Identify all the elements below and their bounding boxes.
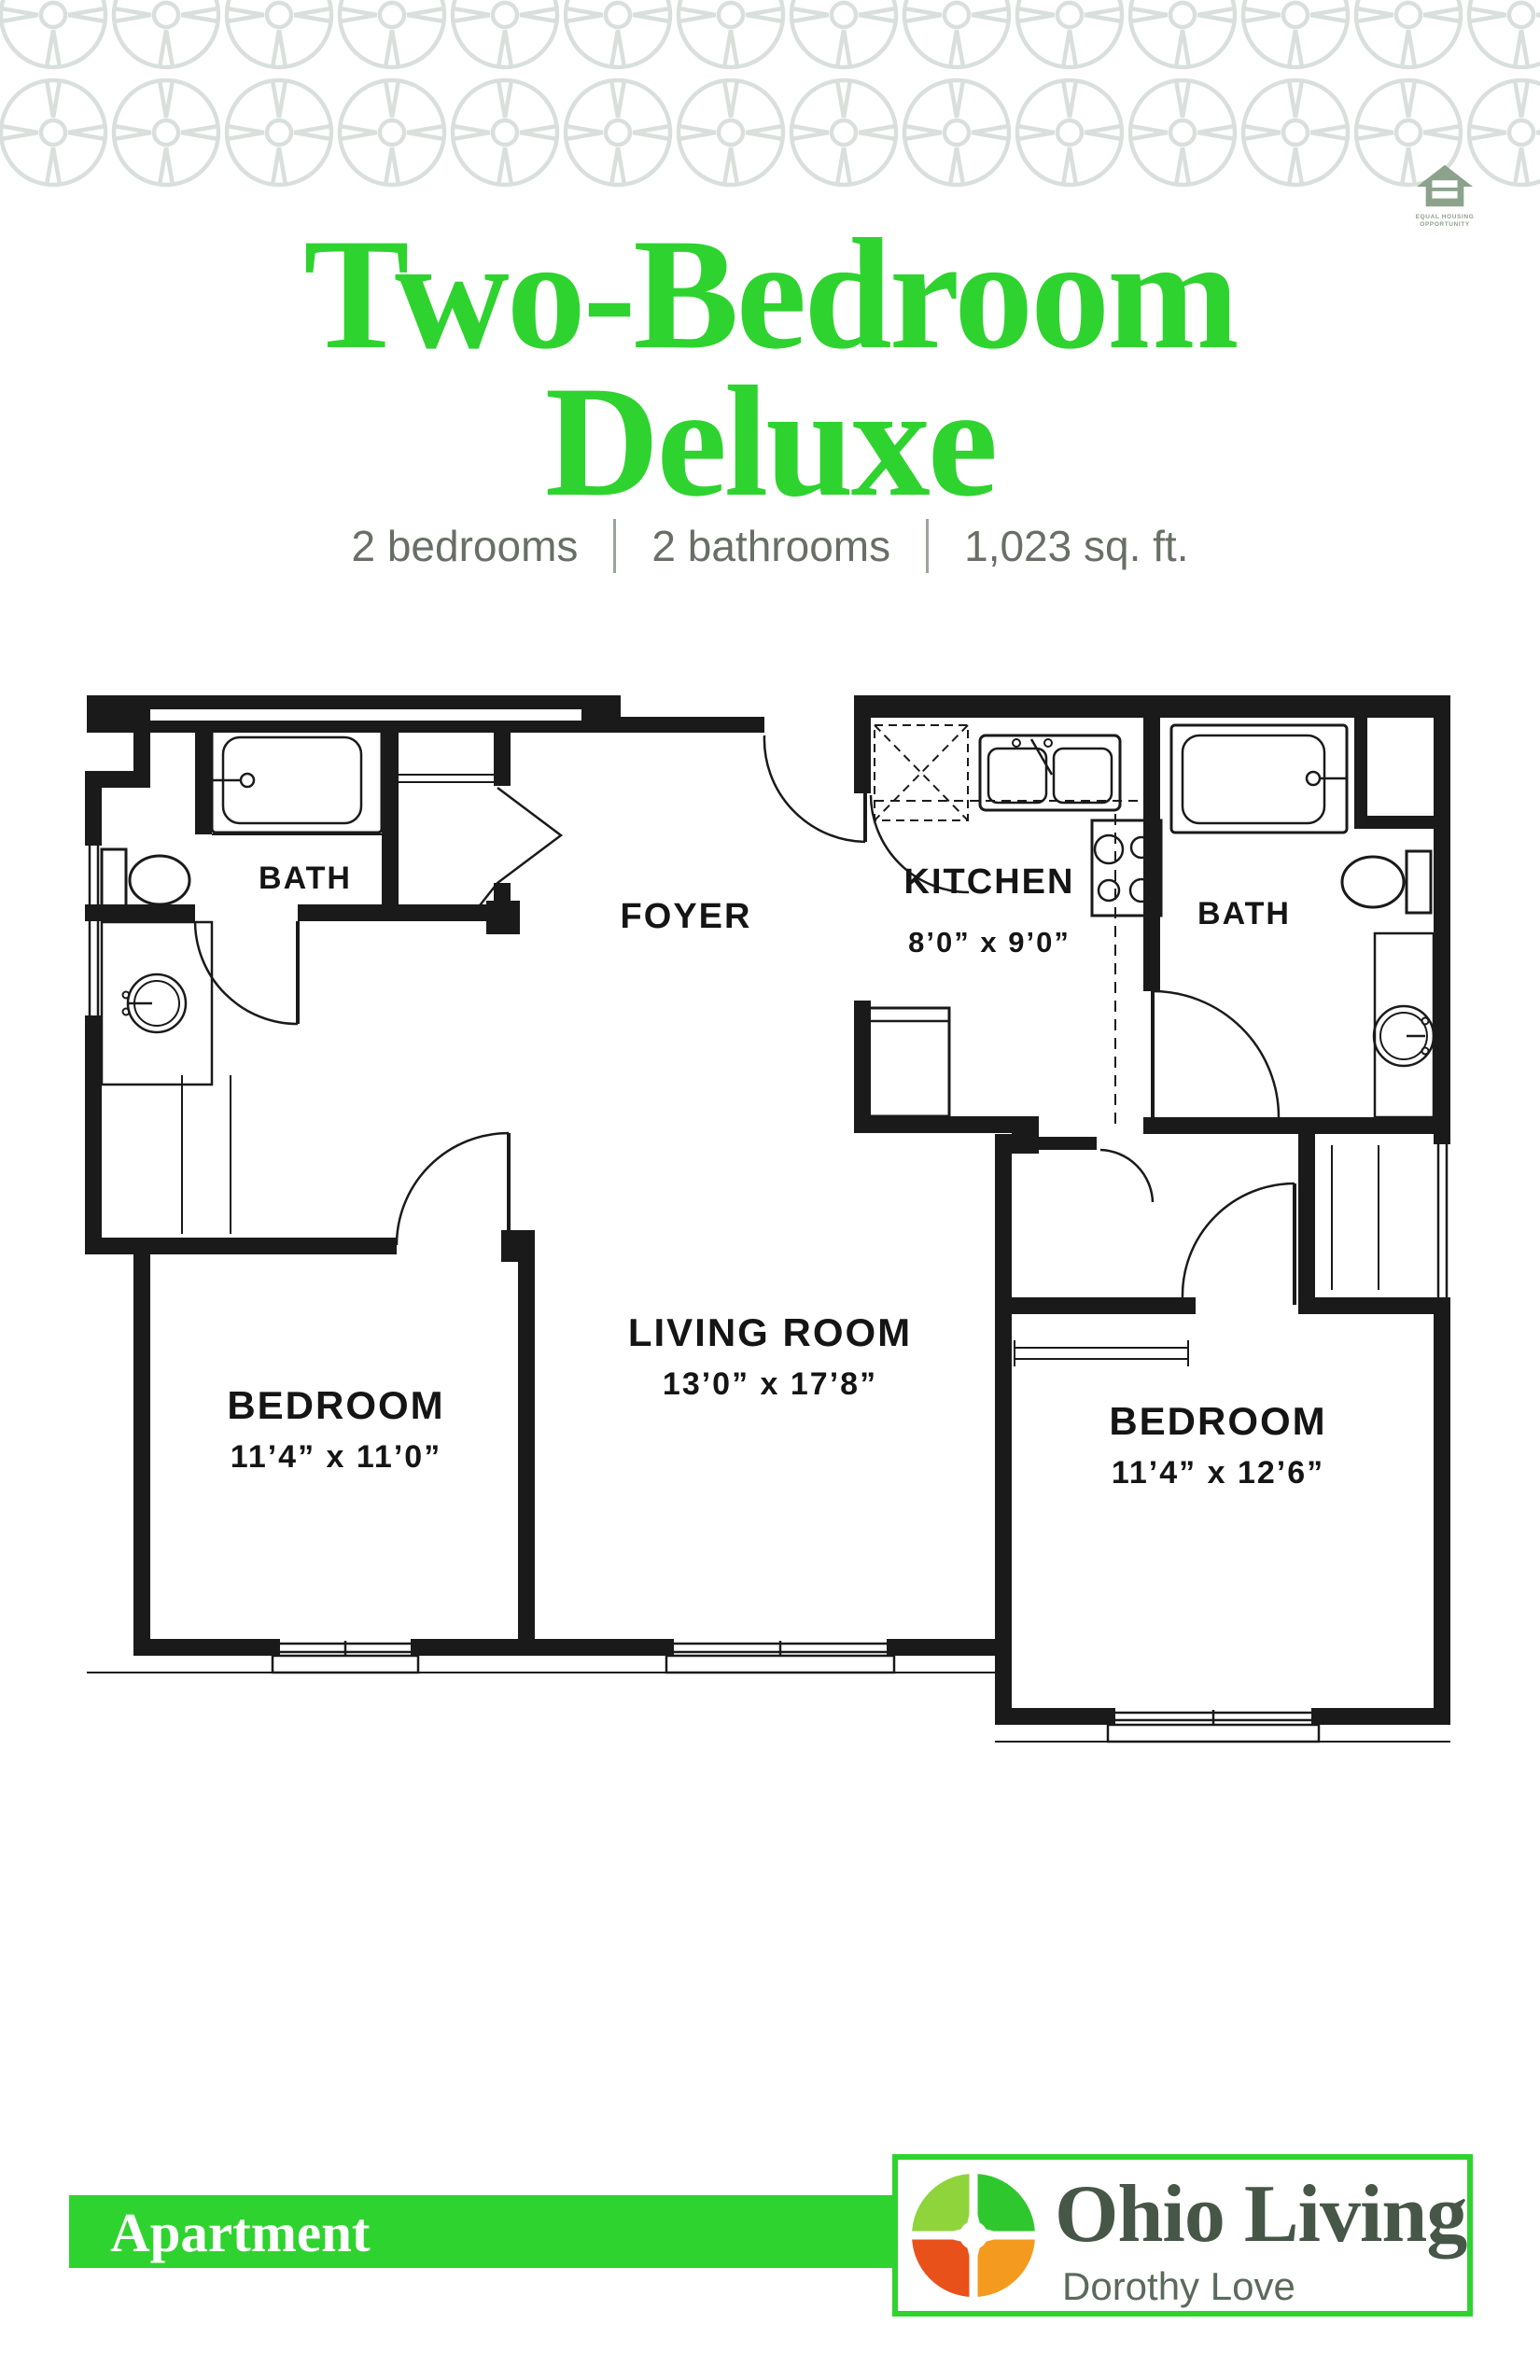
label-living-room: LIVING ROOM [628,1310,912,1354]
bath-right-door-arc [1153,991,1279,1117]
unit-type-label: Apartment [69,2195,892,2270]
equal-housing-house-icon [1417,164,1473,209]
floor-plan: BATH FOYER KITCHEN 8’0” x 9’0” BATH BEDR… [70,693,1451,1757]
brand-name: Ohio Living [1055,2167,1466,2261]
summary-divider [926,519,929,573]
summary-area: 1,023 sq. ft. [964,521,1188,571]
label-bedroom-left: BEDROOM [227,1383,444,1427]
equal-housing-logo: EQUAL HOUSING OPPORTUNITY [1407,164,1482,229]
label-foyer: FOYER [621,897,752,936]
vanity-icon [102,922,212,1085]
flyer-page: { "header": { "pattern_color": "#d9e0dc"… [0,0,1540,2380]
unit-summary: 2 bedrooms 2 bathrooms 1,023 sq. ft. [0,519,1540,573]
unit-type-banner: Apartment [69,2195,892,2268]
label-bath-right: BATH [1197,896,1291,931]
summary-divider [613,519,616,573]
title-line1: Two-Bedroom [0,220,1540,368]
walls [85,695,1450,1725]
summary-bedrooms: 2 bedrooms [351,521,578,571]
summary-bathrooms: 2 bathrooms [651,521,890,571]
foyer-closet-bifold [477,788,561,909]
tub-faucet-icon [241,774,254,787]
tub-faucet-icon [1307,772,1320,785]
brand-community: Dorothy Love [1062,2264,1295,2309]
entry-door-arc [764,735,865,842]
label-living-room-dims: 13’0” x 17’8” [663,1366,877,1402]
bath-left-door-arc [195,921,298,1024]
toilet-icon [1407,851,1431,913]
label-bath-left: BATH [259,861,352,896]
windows [90,842,1447,1742]
ohio-living-logo-icon [903,2165,1043,2305]
bedroom-right-door-arc [1183,1183,1295,1297]
decorative-pattern-band [0,0,1540,196]
label-kitchen-dims: 8’0” x 9’0” [908,926,1071,959]
page-title: Two-Bedroom Deluxe [0,220,1540,515]
bedroom-left-door-arc [397,1133,509,1245]
brand-logo-box: Ohio Living Dorothy Love [892,2154,1473,2317]
label-bedroom-right: BEDROOM [1109,1399,1326,1443]
room-labels: BATH FOYER KITCHEN 8’0” x 9’0” BATH BEDR… [227,861,1326,1491]
door-swings [195,733,1295,1305]
label-bedroom-left-dims: 11’4” x 11’0” [231,1439,441,1475]
refrigerator-icon [863,1008,949,1116]
label-bedroom-right-dims: 11’4” x 12’6” [1112,1455,1324,1491]
hall-opening-arc [1100,1150,1153,1202]
toilet-icon [102,849,126,911]
title-line2: Deluxe [0,368,1540,515]
label-kitchen: KITCHEN [904,862,1075,902]
